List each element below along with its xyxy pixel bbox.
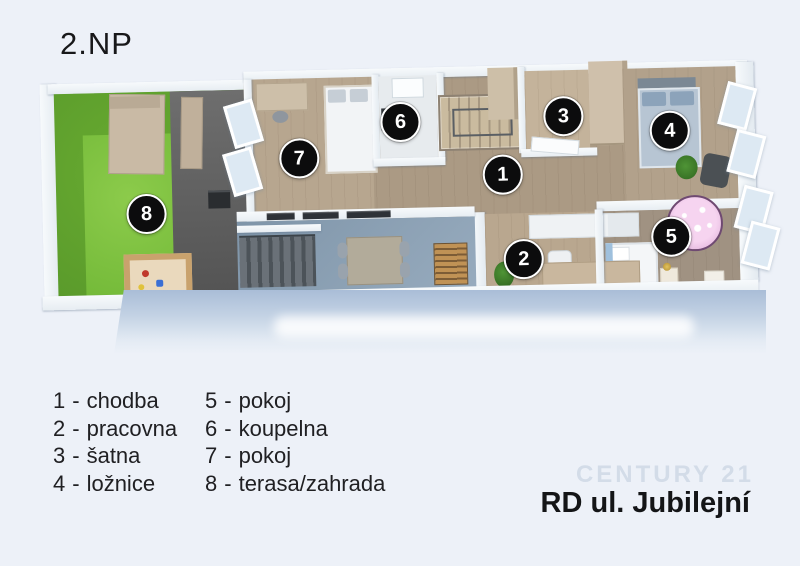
bathroom-sink [391,77,423,98]
legend-room-name: terasa/zahrada [239,471,386,496]
wood-slat-cabinet [433,242,468,285]
legend-room-name: koupelna [239,416,328,441]
floor-label: 2.NP [60,26,133,62]
legend-number: 1 [53,388,65,413]
floorplan-page: { "page": { "floor_label": "2.NP", "proj… [0,0,800,566]
legend-item-3: 3-šatna [53,442,205,470]
legend-number: 2 [53,416,65,441]
legend-item-8: 8-terasa/zahrada [205,470,385,498]
garden-bench [180,97,203,169]
project-title: RD ul. Jubilejní [541,487,750,520]
legend-room-name: chodba [87,388,159,413]
dining-table [346,236,403,285]
desk [256,82,309,111]
parapet-window [347,210,391,218]
bed-pillow [328,89,346,102]
legend-item-6: 6-koupelna [205,415,385,443]
parapet-window [267,213,295,221]
legend-room-name: pokoj [239,443,292,468]
garden-lounger-headrest [110,96,160,109]
dining-chair [400,262,410,278]
terrace-grill [208,190,230,209]
sandbox-toy-yellow [138,284,144,290]
legend-separator: - [224,416,231,441]
legend-number: 8 [205,471,217,496]
legend-column-2: 5-pokoj 6-koupelna 7-pokoj 8-terasa/zahr… [205,387,385,497]
legend-separator: - [72,388,79,413]
legend-separator: - [72,416,79,441]
legend-separator: - [224,471,231,496]
office-cabinets [529,212,640,239]
legend-item-7: 7-pokoj [205,442,385,470]
dining-chair [337,242,347,258]
hall-closet-column [487,67,518,120]
legend-number: 3 [53,443,65,468]
legend-number: 7 [205,443,217,468]
facade-highlight [274,316,694,338]
legend-separator: - [224,443,231,468]
dining-chair [338,263,348,279]
legend-number: 5 [205,388,217,413]
legend-item-5: 5-pokoj [205,387,385,415]
legend-room-name: pokoj [239,388,292,413]
legend-room-name: ložnice [87,471,155,496]
legend-item-4: 4-ložnice [53,470,205,498]
floorplan-render: 1 2 3 4 5 6 7 8 [37,57,768,314]
facade-band [114,290,766,354]
legend-item-2: 2-pracovna [53,415,205,443]
parapet-window [303,212,339,220]
wall-bath-bottom [373,157,445,167]
staircase-down [239,234,316,288]
agency-watermark: CENTURY 21 [576,461,754,489]
legend-room-name: šatna [87,443,141,468]
dining-chair [399,241,409,257]
room-legend: 1-chodba 2-pracovna 3-šatna 4-ložnice 5-… [53,387,385,497]
legend-item-1: 1-chodba [53,387,205,415]
legend-separator: - [224,388,231,413]
legend-separator: - [72,471,79,496]
sandbox-toy-blue [156,280,163,287]
legend-number: 4 [53,471,65,496]
bed-pillow [670,91,694,106]
legend-room-name: pracovna [87,416,178,441]
legend-number: 6 [205,416,217,441]
legend-separator: - [72,443,79,468]
legend-column-1: 1-chodba 2-pracovna 3-šatna 4-ložnice [53,387,205,497]
bed-pillow [642,92,666,107]
bed-pillow [350,89,368,102]
